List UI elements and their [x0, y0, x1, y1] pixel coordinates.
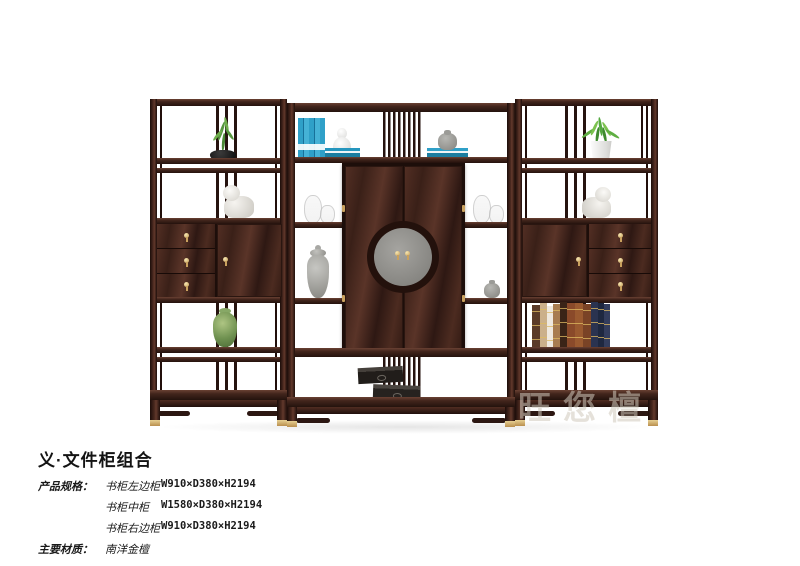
shelf-board — [522, 158, 651, 164]
left-cabinet — [150, 99, 287, 427]
side-shelf-board — [295, 298, 342, 304]
green-vase — [212, 308, 238, 347]
brass-foot — [287, 421, 297, 427]
stretcher — [296, 418, 330, 423]
side-shelf-board — [460, 222, 507, 228]
drawer — [589, 274, 651, 297]
stretcher — [158, 411, 190, 416]
top-board — [150, 99, 287, 106]
hinge — [462, 205, 465, 212]
apron-rail — [287, 407, 515, 414]
drawer-stack — [157, 224, 215, 297]
watermark: 旺您檀 — [518, 381, 653, 429]
spec-label: 产品规格： — [38, 478, 105, 494]
drawer — [589, 249, 651, 274]
bottom-board — [287, 397, 515, 407]
slat-group — [216, 362, 243, 390]
door-knob — [405, 251, 410, 256]
top-board — [515, 99, 658, 106]
drawer-pull — [618, 282, 623, 287]
top-board — [287, 103, 515, 112]
caption: 义·文件柜组合 产品规格： 书柜左边柜 W910×D380×H2194 书柜中柜… — [38, 446, 438, 557]
spec-item-name: 书柜左边柜 — [105, 478, 161, 494]
medallion-plate — [374, 228, 432, 286]
shelf-board — [157, 158, 280, 164]
leg — [505, 407, 515, 422]
spec-item-dimensions: W1580×D380×H2194 — [161, 499, 438, 515]
slat-group — [383, 112, 423, 157]
material-value: 南洋金檀 — [105, 541, 438, 557]
side-post — [651, 99, 658, 407]
shelf-board — [295, 348, 507, 357]
middle-cabinet — [287, 103, 515, 427]
apron-rail — [150, 400, 287, 407]
side-shelf-board — [460, 298, 507, 304]
book-row — [532, 302, 610, 347]
material-label: 主要材质： — [38, 541, 105, 557]
black-box — [358, 366, 404, 384]
drawer-pull — [618, 233, 623, 238]
blue-books-vertical — [298, 118, 325, 157]
flat-blue-books — [325, 148, 360, 157]
spec-item-name: 书柜中柜 — [105, 499, 161, 515]
drawer — [157, 224, 215, 249]
side-post — [287, 103, 295, 414]
lion-statue — [222, 185, 256, 218]
shelf-board — [157, 347, 280, 353]
brass-foot — [277, 420, 287, 426]
door-pull — [576, 257, 581, 262]
shelf-board — [522, 168, 651, 173]
side-post — [507, 103, 515, 414]
glass-jar — [473, 195, 491, 224]
hinge — [342, 295, 345, 302]
potted-plant — [581, 117, 621, 163]
spec-item-name: 书柜右边柜 — [105, 520, 161, 536]
drawer — [157, 274, 215, 297]
lion-statue — [581, 187, 613, 218]
drawer-stack — [589, 224, 651, 297]
hinge — [342, 205, 345, 212]
product-title: 义·文件柜组合 — [38, 446, 438, 471]
drawer — [589, 224, 651, 249]
drawer-pull — [618, 258, 623, 263]
side-shelf-board — [295, 222, 342, 228]
bottom-board — [150, 390, 287, 400]
drawer-pull — [184, 282, 189, 287]
spec-item-dimensions: W910×D380×H2194 — [161, 520, 438, 536]
bonsai-plant — [208, 115, 240, 163]
inner-post — [641, 106, 643, 164]
side-post — [515, 99, 522, 407]
center-door-unit — [342, 163, 465, 352]
stretcher — [472, 418, 506, 423]
drawer — [157, 249, 215, 274]
shelf-board — [157, 168, 280, 173]
spec-table: 产品规格： 书柜左边柜 W910×D380×H2194 书柜中柜 W1580×D… — [38, 478, 438, 557]
drawer-pull — [184, 233, 189, 238]
right-cabinet — [515, 99, 658, 427]
leg — [287, 407, 297, 422]
brass-foot — [505, 421, 515, 427]
hinge — [462, 295, 465, 302]
grey-jar — [438, 133, 457, 150]
stretcher — [247, 411, 279, 416]
shelf-board — [157, 297, 280, 303]
leg — [150, 400, 160, 421]
shelf-board — [522, 357, 651, 362]
side-post — [150, 99, 157, 407]
door-pull — [223, 257, 228, 262]
drawer-pull — [184, 258, 189, 263]
door-knob — [395, 251, 400, 256]
spec-item-dimensions: W910×D380×H2194 — [161, 478, 438, 494]
cabinet-door — [215, 224, 282, 297]
glass-jar — [304, 195, 322, 224]
leg — [277, 400, 287, 421]
catalog-page: { "caption": { "title": "义·文件柜组合", "prod… — [0, 0, 800, 566]
brass-foot — [150, 420, 160, 426]
shelf-board — [522, 347, 651, 353]
grey-lidded-vase — [305, 245, 331, 298]
small-grey-jar — [484, 283, 500, 298]
cabinet-door — [522, 224, 589, 297]
shelf-board — [157, 357, 280, 362]
